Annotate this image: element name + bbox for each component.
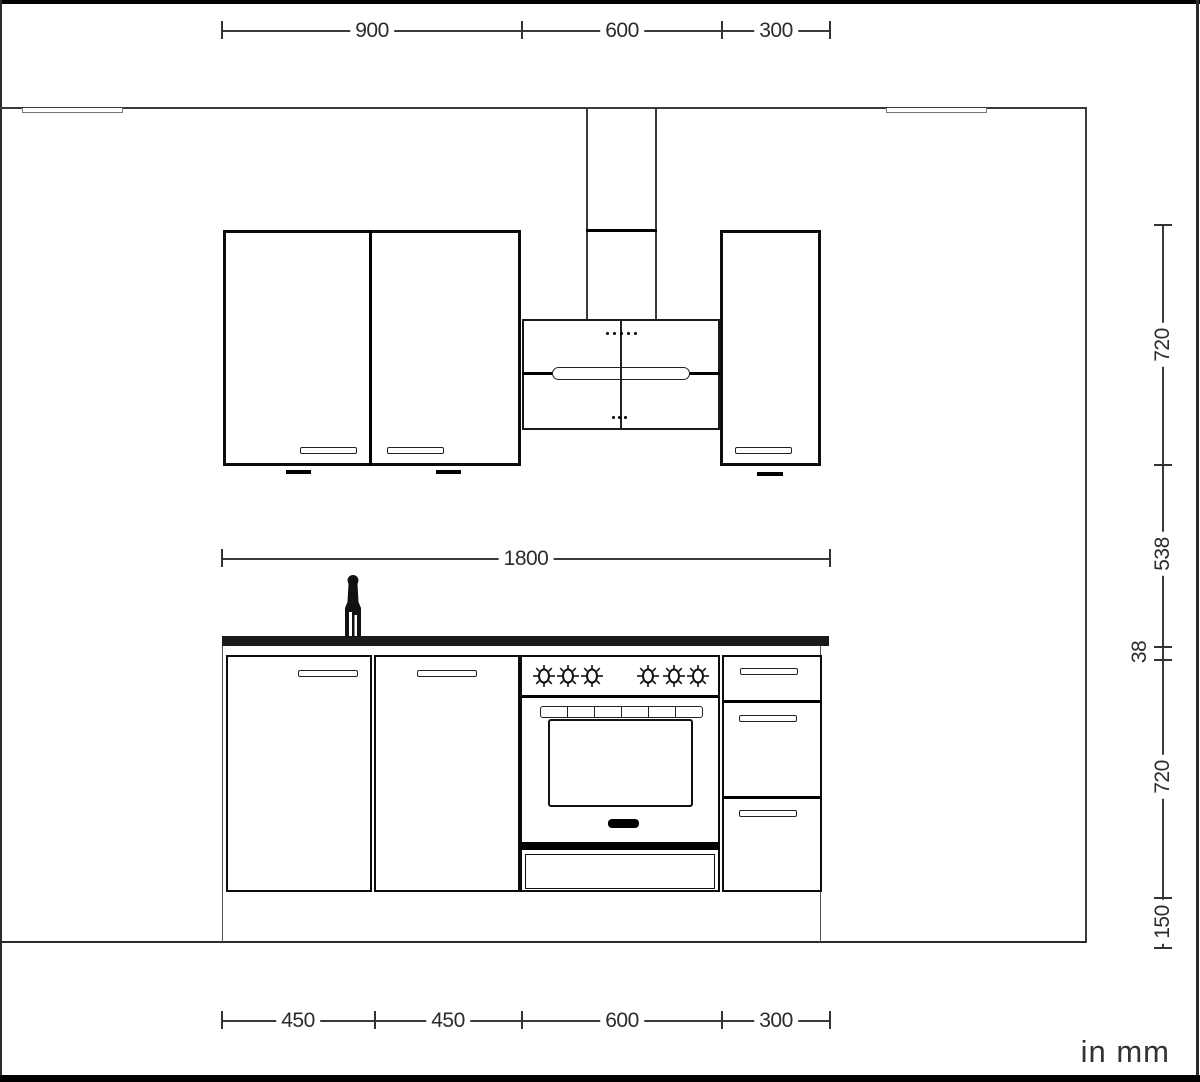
- dim-tick: [829, 549, 831, 567]
- dim-label-1800: 1800: [499, 547, 554, 571]
- hood-control-dot: [627, 332, 630, 335]
- hood-detail-dot: [618, 416, 621, 419]
- burner-knob-icon: [556, 664, 580, 688]
- dim-tick: [829, 1011, 831, 1029]
- dim-label-300: 300: [754, 19, 798, 43]
- dim-label-38: 38: [1128, 636, 1152, 668]
- dim-label-450-right: 450: [426, 1009, 470, 1033]
- dim-tick: [521, 21, 523, 39]
- burner-knob-icon: [580, 664, 604, 688]
- base-cabinet-door-handle: [298, 670, 358, 677]
- wall-cabinet-right: [720, 230, 821, 466]
- oven-storage-drawer: [525, 854, 715, 889]
- dim-label-300: 300: [754, 1009, 798, 1033]
- right-wall-line: [1085, 107, 1087, 943]
- faucet-icon: [341, 574, 365, 638]
- floor-line: [0, 941, 1086, 943]
- dim-tick: [521, 1011, 523, 1029]
- hood-chimney-joint: [586, 229, 657, 232]
- dim-tick: [1154, 947, 1172, 949]
- burner-knob-icon: [636, 664, 660, 688]
- dim-label-450-left: 450: [276, 1009, 320, 1033]
- dim-label-720-lower: 720: [1151, 755, 1175, 799]
- hood-control-dot: [620, 332, 623, 335]
- dim-tick: [221, 21, 223, 39]
- dim-tick: [1154, 646, 1172, 648]
- plinth-side-line-left: [222, 646, 223, 942]
- hood-chimney-left-line: [586, 107, 588, 320]
- dim-tick: [1154, 897, 1172, 899]
- wall-mount-mark: [436, 470, 461, 474]
- hood-detail-dot: [624, 416, 627, 419]
- ceiling-trim-right: [886, 108, 987, 113]
- oven-window: [548, 719, 693, 807]
- dim-tick: [1154, 224, 1172, 226]
- hood-control-dot: [613, 332, 616, 335]
- hood-chimney-right-line: [655, 107, 657, 320]
- wall-cabinet-door-handle: [387, 447, 444, 454]
- drawer-handle: [739, 715, 797, 722]
- dim-label-900: 900: [350, 19, 394, 43]
- base-cabinet-door-right: [374, 655, 520, 892]
- dim-tick: [374, 1011, 376, 1029]
- drawer-divider: [722, 700, 822, 703]
- units-note: in mm: [1040, 1034, 1170, 1070]
- burner-knob-icon: [686, 664, 710, 688]
- stove-panel-line: [522, 695, 718, 698]
- countertop: [222, 636, 829, 646]
- oven-logo-badge: [608, 819, 639, 828]
- frame-left-border: [0, 0, 2, 1075]
- oven-door-bottom-band: [520, 842, 720, 850]
- wall-cabinet-door-handle: [300, 447, 357, 454]
- dim-tick: [221, 549, 223, 567]
- dim-tick: [721, 21, 723, 39]
- dim-label-600: 600: [600, 19, 644, 43]
- drawer-divider: [722, 796, 822, 799]
- frame-bottom-border: [0, 1075, 1200, 1082]
- wall-mount-mark: [757, 472, 783, 476]
- kitchen-elevation-drawing: 900 600 300 1800: [0, 0, 1200, 1082]
- frame-top-border: [0, 0, 1200, 4]
- wall-cabinet-door-handle: [735, 447, 792, 454]
- wall-cabinet-left-divider: [369, 230, 372, 466]
- wall-cabinet-left: [223, 230, 521, 466]
- wall-mount-mark: [286, 470, 311, 474]
- hood-center-line: [620, 319, 622, 430]
- dim-label-538: 538: [1151, 532, 1175, 576]
- dim-label-600: 600: [600, 1009, 644, 1033]
- base-cabinet-door-left: [226, 655, 372, 892]
- dim-label-150: 150: [1151, 900, 1175, 944]
- burner-knob-icon: [662, 664, 686, 688]
- drawer-handle: [739, 810, 797, 817]
- hood-control-dot: [634, 332, 637, 335]
- base-cabinet-door-handle: [417, 670, 477, 677]
- hood-control-dot: [606, 332, 609, 335]
- dim-tick: [1154, 464, 1172, 466]
- dim-tick: [1154, 659, 1172, 661]
- oven-handle: [540, 706, 703, 718]
- dim-tick: [221, 1011, 223, 1029]
- dim-tick: [829, 21, 831, 39]
- drawer-unit: [722, 655, 822, 892]
- hood-detail-dot: [612, 416, 615, 419]
- dim-tick: [721, 1011, 723, 1029]
- burner-knob-icon: [532, 664, 556, 688]
- drawer-handle: [740, 668, 798, 675]
- ceiling-trim-left: [22, 108, 123, 113]
- dim-label-720-upper: 720: [1151, 323, 1175, 367]
- frame-right-border: [1196, 0, 1199, 1075]
